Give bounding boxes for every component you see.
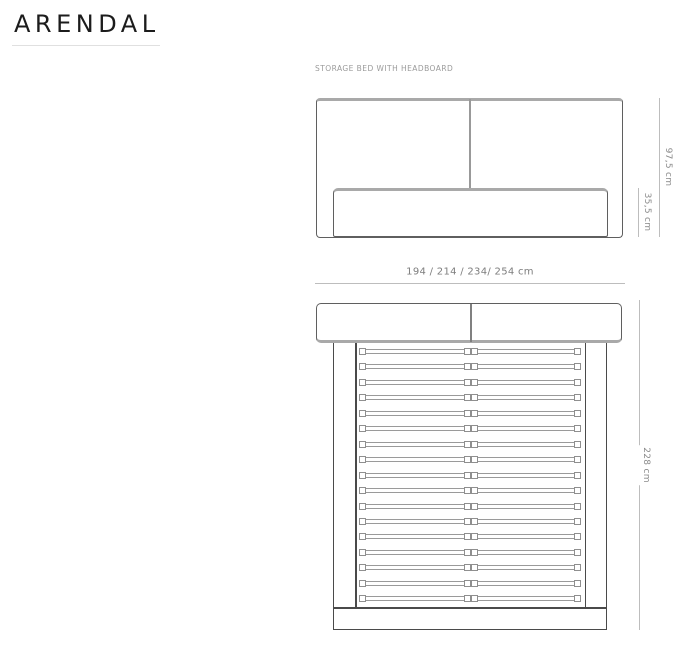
slat-end-cap bbox=[464, 564, 471, 571]
slat-end-cap bbox=[464, 503, 471, 510]
slat-end-cap bbox=[471, 348, 478, 355]
slat-end-cap bbox=[574, 595, 581, 602]
slat-end-cap bbox=[359, 472, 366, 479]
slat-end-cap bbox=[464, 410, 471, 417]
slat-end-cap bbox=[359, 425, 366, 432]
slat-row bbox=[359, 472, 581, 479]
slat-end-cap bbox=[574, 518, 581, 525]
slat-end-cap bbox=[464, 595, 471, 602]
slat-end-cap bbox=[359, 379, 366, 386]
dimension-line-widths bbox=[315, 283, 625, 284]
slat-end-cap bbox=[471, 456, 478, 463]
slat-end-cap bbox=[359, 549, 366, 556]
slat-end-cap bbox=[574, 472, 581, 479]
dimension-label-length: 228 cm bbox=[637, 445, 655, 485]
slat-row bbox=[359, 580, 581, 587]
slat-end-cap bbox=[471, 425, 478, 432]
slat-end-cap bbox=[574, 410, 581, 417]
slat-end-cap bbox=[464, 456, 471, 463]
slat-end-cap bbox=[464, 441, 471, 448]
slat-row bbox=[359, 348, 581, 355]
slat-end-cap bbox=[359, 410, 366, 417]
slat-end-cap bbox=[464, 394, 471, 401]
slat-end-cap bbox=[574, 363, 581, 370]
slat-end-cap bbox=[574, 456, 581, 463]
slat-end-cap bbox=[359, 487, 366, 494]
slat-end-cap bbox=[471, 564, 478, 571]
dimension-label-total-height: 97,5 cm bbox=[663, 148, 673, 187]
slat-end-cap bbox=[471, 394, 478, 401]
top-footboard-line bbox=[333, 607, 607, 609]
top-headboard-split-line bbox=[470, 304, 472, 342]
slat-end-cap bbox=[359, 533, 366, 540]
slat-end-cap bbox=[471, 518, 478, 525]
slat-end-cap bbox=[359, 503, 366, 510]
slat-end-cap bbox=[471, 472, 478, 479]
slat-end-cap bbox=[574, 503, 581, 510]
product-subtitle: STORAGE BED WITH HEADBOARD bbox=[315, 64, 453, 73]
slat-row bbox=[359, 518, 581, 525]
slat-end-cap bbox=[359, 595, 366, 602]
slat-row bbox=[359, 564, 581, 571]
slat-end-cap bbox=[464, 363, 471, 370]
slat-end-cap bbox=[574, 549, 581, 556]
slat-end-cap bbox=[471, 533, 478, 540]
slat-end-cap bbox=[464, 379, 471, 386]
slat-end-cap bbox=[464, 487, 471, 494]
slat-end-cap bbox=[359, 456, 366, 463]
slat-end-cap bbox=[359, 564, 366, 571]
dimension-line-frame-height bbox=[638, 188, 639, 237]
slat-end-cap bbox=[359, 348, 366, 355]
top-right-rail-line bbox=[585, 342, 587, 608]
slat-end-cap bbox=[359, 518, 366, 525]
front-bed-frame-outline bbox=[333, 188, 608, 237]
slat-end-cap bbox=[464, 533, 471, 540]
slat-row bbox=[359, 549, 581, 556]
slat-end-cap bbox=[359, 441, 366, 448]
product-spec-sheet: ARENDAL STORAGE BED WITH HEADBOARD 97,5 … bbox=[0, 0, 690, 650]
slat-end-cap bbox=[464, 549, 471, 556]
slat-end-cap bbox=[464, 472, 471, 479]
slat-end-cap bbox=[574, 580, 581, 587]
top-headboard-outline bbox=[316, 303, 622, 343]
dimension-line-total-height bbox=[659, 98, 660, 237]
front-headboard-split-line bbox=[469, 99, 471, 188]
slat-end-cap bbox=[574, 533, 581, 540]
slat-end-cap bbox=[574, 379, 581, 386]
slat-area bbox=[356, 343, 584, 607]
dimension-label-widths: 194 / 214 / 234/ 254 cm bbox=[406, 267, 534, 278]
slat-end-cap bbox=[359, 580, 366, 587]
slat-row bbox=[359, 503, 581, 510]
slat-end-cap bbox=[471, 379, 478, 386]
slat-end-cap bbox=[471, 441, 478, 448]
slat-end-cap bbox=[471, 410, 478, 417]
slat-row bbox=[359, 441, 581, 448]
slat-row bbox=[359, 410, 581, 417]
slat-row bbox=[359, 394, 581, 401]
slat-end-cap bbox=[471, 363, 478, 370]
slat-end-cap bbox=[464, 348, 471, 355]
slat-row bbox=[359, 363, 581, 370]
slat-end-cap bbox=[574, 441, 581, 448]
title-underline bbox=[12, 45, 160, 46]
slat-end-cap bbox=[464, 580, 471, 587]
product-title: ARENDAL bbox=[14, 10, 160, 38]
slat-end-cap bbox=[359, 394, 366, 401]
dimension-label-frame-height: 35,5 cm bbox=[642, 193, 652, 232]
slat-end-cap bbox=[574, 487, 581, 494]
slat-row bbox=[359, 533, 581, 540]
slat-end-cap bbox=[574, 394, 581, 401]
slat-end-cap bbox=[471, 580, 478, 587]
slat-end-cap bbox=[464, 518, 471, 525]
slat-row bbox=[359, 425, 581, 432]
slat-end-cap bbox=[471, 487, 478, 494]
slat-end-cap bbox=[471, 503, 478, 510]
slat-row bbox=[359, 595, 581, 602]
slat-row bbox=[359, 487, 581, 494]
slat-row bbox=[359, 379, 581, 386]
slat-end-cap bbox=[464, 425, 471, 432]
slat-end-cap bbox=[574, 564, 581, 571]
slat-end-cap bbox=[471, 549, 478, 556]
slat-row bbox=[359, 456, 581, 463]
slat-end-cap bbox=[574, 425, 581, 432]
slat-end-cap bbox=[359, 363, 366, 370]
slat-end-cap bbox=[574, 348, 581, 355]
slat-end-cap bbox=[471, 595, 478, 602]
